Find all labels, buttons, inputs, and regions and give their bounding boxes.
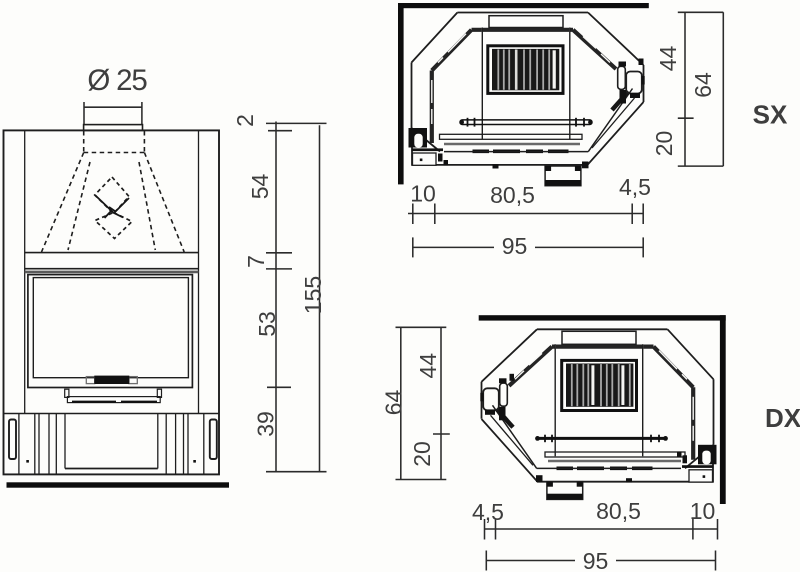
svg-text:44: 44 — [415, 353, 441, 379]
svg-text:44: 44 — [655, 46, 681, 72]
svg-text:DX: DX — [765, 403, 800, 433]
svg-text:2: 2 — [232, 114, 258, 127]
svg-text:53: 53 — [254, 311, 280, 337]
svg-text:10: 10 — [410, 181, 436, 207]
svg-text:Ø 25: Ø 25 — [87, 64, 147, 97]
svg-text:4,5: 4,5 — [619, 174, 651, 200]
svg-text:20: 20 — [409, 441, 435, 467]
svg-text:10: 10 — [690, 498, 716, 524]
svg-text:54: 54 — [247, 174, 273, 200]
svg-text:64: 64 — [380, 390, 406, 416]
svg-text:64: 64 — [690, 72, 716, 98]
svg-text:80,5: 80,5 — [596, 498, 641, 524]
svg-text:20: 20 — [651, 131, 677, 157]
svg-text:80,5: 80,5 — [490, 182, 535, 208]
svg-text:4,5: 4,5 — [472, 499, 504, 525]
svg-text:SX: SX — [753, 100, 788, 130]
svg-text:95: 95 — [583, 548, 609, 572]
svg-text:95: 95 — [502, 233, 528, 259]
svg-text:7: 7 — [243, 255, 269, 268]
svg-text:155: 155 — [300, 276, 326, 314]
svg-text:39: 39 — [253, 411, 279, 437]
